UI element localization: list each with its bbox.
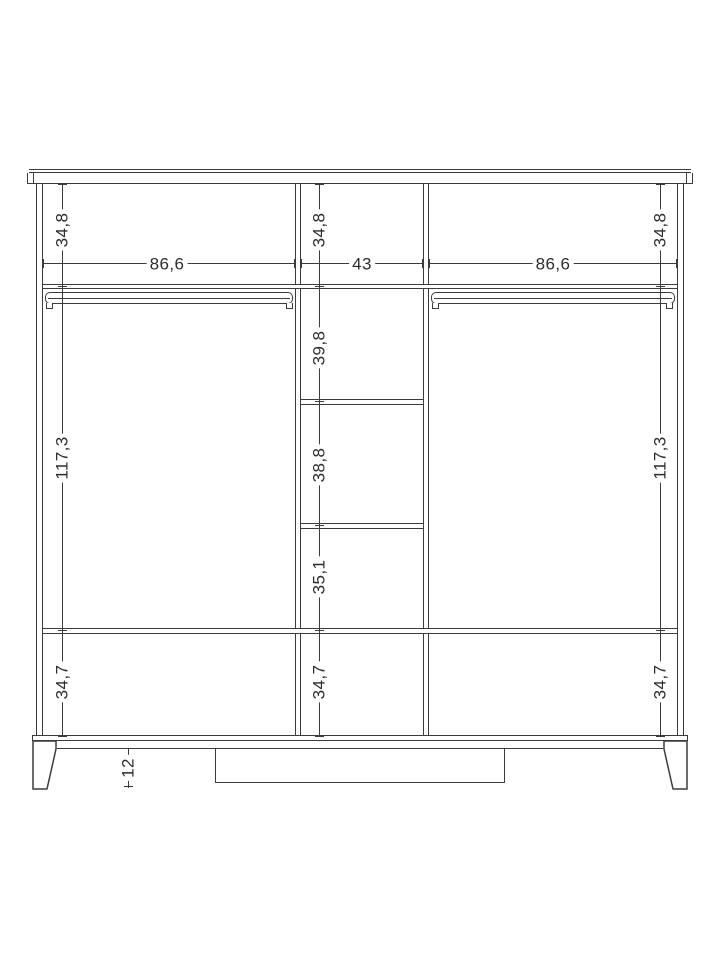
- side-panel-right: [677, 184, 684, 735]
- dim-tick: [429, 259, 430, 268]
- bottom-board: [32, 735, 688, 741]
- dim-tick: [301, 259, 302, 268]
- dim-label-top-center: 34,8: [310, 210, 329, 251]
- dim-label-width-right: 86,6: [533, 255, 574, 274]
- hanging-rail-left-bracket-left: [46, 303, 53, 309]
- recessed-base-panel: [215, 748, 505, 783]
- dim-tick: [124, 786, 133, 787]
- bottom-shelf: [43, 628, 677, 634]
- top-shelf: [43, 284, 677, 289]
- hanging-rail-right-midline: [434, 298, 672, 299]
- dim-tick: [656, 184, 665, 185]
- dim-tick: [315, 286, 324, 287]
- dim-label-bottom-right: 34,7: [651, 662, 670, 703]
- dim-tick: [315, 630, 324, 631]
- wardrobe-dimension-drawing: 34,8 34,8 34,8 86,6 43 86,6 39,8 117,3 1…: [0, 0, 720, 960]
- hanging-rail-left-bracket-right: [286, 303, 293, 309]
- hanging-rail-left-midline: [48, 298, 290, 299]
- dim-label-leg-height: 12: [119, 755, 138, 781]
- leg-left-shape: [31, 740, 59, 791]
- dim-tick: [315, 736, 324, 737]
- dim-tick: [58, 184, 67, 185]
- dim-label-left-height: 117,3: [53, 433, 72, 482]
- dim-label-right-height: 117,3: [651, 433, 670, 482]
- dim-label-bottom-left: 34,7: [53, 662, 72, 703]
- dim-tick: [656, 286, 665, 287]
- cornice-step-left: [33, 173, 34, 184]
- dim-tick: [43, 259, 44, 268]
- dim-tick: [315, 525, 324, 526]
- dim-tick: [58, 630, 67, 631]
- leg-left: [31, 740, 59, 791]
- dim-tick: [656, 630, 665, 631]
- side-panel-left: [36, 184, 43, 735]
- leg-right-shape: [661, 740, 689, 791]
- dim-label-center-shelf-3: 35,1: [310, 557, 329, 598]
- dim-label-center-shelf-1: 39,8: [310, 328, 329, 369]
- dim-tick: [315, 184, 324, 185]
- cornice-band: [27, 173, 693, 184]
- hanging-rail-right-bracket-left: [432, 303, 439, 309]
- dim-tick: [58, 736, 67, 737]
- dim-label-bottom-center: 34,7: [310, 662, 329, 703]
- dim-tick: [294, 259, 295, 268]
- dim-label-width-center: 43: [349, 255, 375, 274]
- dim-label-top-left: 34,8: [53, 210, 72, 251]
- dim-label-top-right: 34,8: [651, 210, 670, 251]
- leg-right: [661, 740, 689, 791]
- dim-label-width-left: 86,6: [147, 255, 188, 274]
- cornice-step-right: [686, 173, 687, 184]
- dim-tick: [676, 259, 677, 268]
- dim-tick: [656, 736, 665, 737]
- dim-tick: [58, 286, 67, 287]
- dim-tick: [315, 401, 324, 402]
- dim-label-center-shelf-2: 38,8: [310, 445, 329, 486]
- dim-tick: [124, 748, 133, 749]
- dim-tick: [422, 259, 423, 268]
- hanging-rail-right-bracket-right: [666, 303, 673, 309]
